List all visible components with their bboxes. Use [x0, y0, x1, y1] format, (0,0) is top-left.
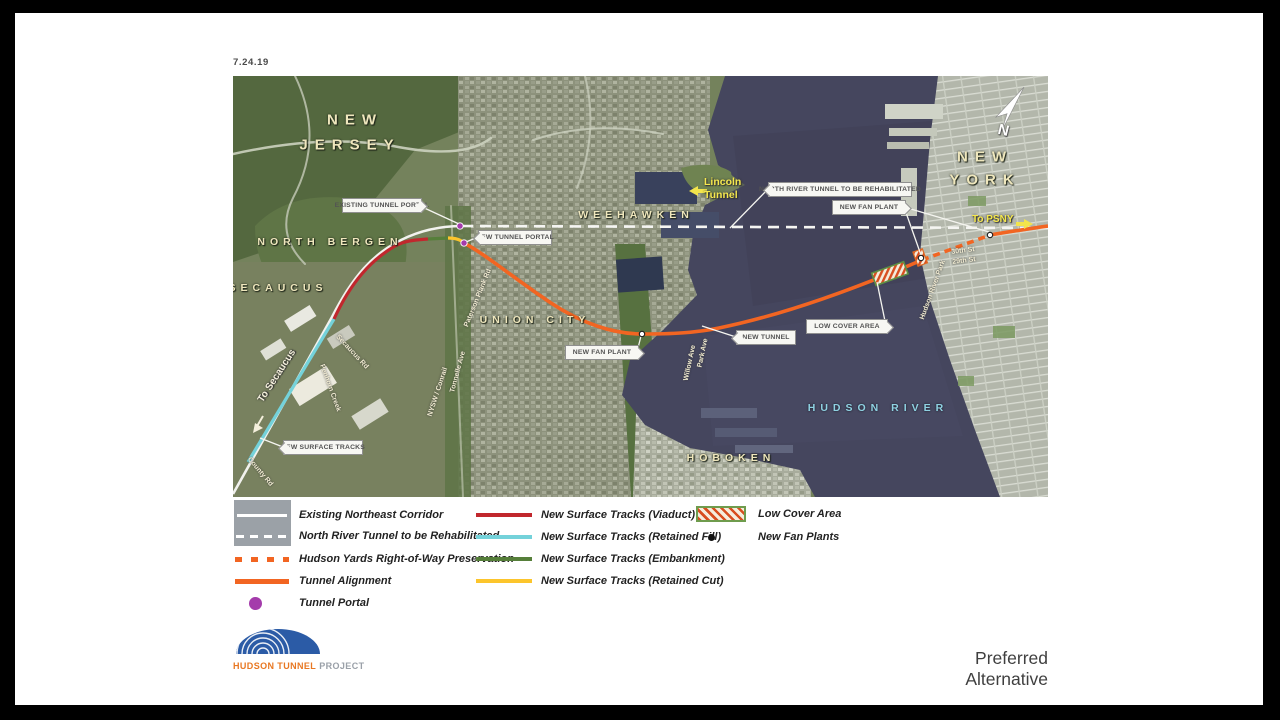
callout-new-tunnel: NEW TUNNEL: [736, 330, 796, 345]
new-tunnel-portal-dot: [461, 240, 467, 246]
legend-item: New Surface Tracks (Viaduct): [475, 504, 695, 526]
label-new-jersey-line1: NEW: [327, 112, 383, 129]
legend-item: New Surface Tracks (Embankment): [475, 548, 725, 570]
legend: Existing Northeast Corridor North River …: [233, 500, 1048, 618]
label-secaucus: SECAUCUS: [233, 282, 327, 294]
new-fan-plants-swatch: [692, 526, 750, 548]
callout-existing-tunnel-portal: EXISTING TUNNEL PORTAL: [342, 198, 422, 213]
north-river-tunnel-swatch: [233, 525, 291, 547]
retained-fill-swatch: [475, 526, 533, 548]
label-to-psny: To PSNY: [972, 213, 1013, 226]
fan-plant-nj-dot: [639, 331, 644, 336]
hudson-yards-row-swatch: [233, 548, 291, 570]
callout-new-tunnel-portal: NEW TUNNEL PORTAL: [478, 230, 552, 245]
existing-corridor-swatch: [233, 504, 291, 526]
label-weehawken: WEEHAWKEN: [578, 209, 694, 221]
legend-item: North River Tunnel to be Rehabilitated: [233, 525, 499, 547]
legend-item: Tunnel Alignment: [233, 570, 391, 592]
fan-plant-ny2-dot: [987, 232, 992, 237]
legend-item: Tunnel Portal: [233, 592, 369, 614]
legend-item: Hudson Yards Right-of-Way Preservation: [233, 548, 514, 570]
hudson-tunnel-project-logo: HUDSON TUNNELPROJECT: [233, 627, 393, 671]
embankment-track: [428, 238, 448, 239]
label-union-city: UNION CITY: [480, 314, 591, 326]
callout-new-fan-plant-ny: NEW FAN PLANT: [832, 200, 906, 215]
date-label: 7.24.19: [233, 57, 269, 68]
callout-new-fan-plant-nj: NEW FAN PLANT: [565, 345, 639, 360]
label-lincoln-tunnel: Lincoln Tunnel: [704, 176, 741, 202]
label-new-york-line1: NEW: [957, 149, 1013, 166]
fan-plant-ny1-dot: [918, 255, 923, 260]
figure-canvas: 7.24.19: [0, 0, 1280, 720]
existing-tunnel-portal-dot: [457, 223, 463, 229]
logo-text: HUDSON TUNNELPROJECT: [233, 661, 393, 671]
legend-item: Existing Northeast Corridor: [233, 504, 443, 526]
legend-item: New Surface Tracks (Retained Cut): [475, 570, 724, 592]
label-north-bergen: NORTH BERGEN: [257, 236, 402, 248]
label-new-york-line2: YORK: [949, 172, 1020, 189]
callout-new-surface-tracks: NEW SURFACE TRACKS: [283, 440, 363, 455]
low-cover-area-swatch: [692, 503, 750, 525]
legend-item: New Fan Plants: [692, 526, 839, 548]
legend-item: Low Cover Area: [692, 503, 841, 525]
embankment-swatch: [475, 548, 533, 570]
label-hudson-river: HUDSON RIVER: [808, 402, 949, 414]
project-map: NEW JERSEY NEW YORK NORTH BERGEN SECAUCU…: [233, 76, 1048, 497]
viaduct-swatch: [475, 504, 533, 526]
tunnel-portal-swatch: [233, 592, 291, 614]
tunnel-arch-icon: [233, 627, 325, 655]
legend-item: New Surface Tracks (Retained Fill): [475, 526, 721, 548]
callout-north-river-tunnel: NORTH RIVER TUNNEL TO BE REHABILITATED: [768, 182, 912, 197]
weehawken-reservoir: [616, 256, 664, 292]
tunnel-alignment-swatch: [233, 570, 291, 592]
callout-low-cover-area: LOW COVER AREA: [806, 319, 888, 334]
slide-title: Preferred Alternative: [908, 648, 1048, 690]
retained-cut-swatch: [475, 570, 533, 592]
label-hoboken: HOBOKEN: [687, 452, 776, 464]
label-new-jersey-line2: JERSEY: [299, 137, 400, 154]
